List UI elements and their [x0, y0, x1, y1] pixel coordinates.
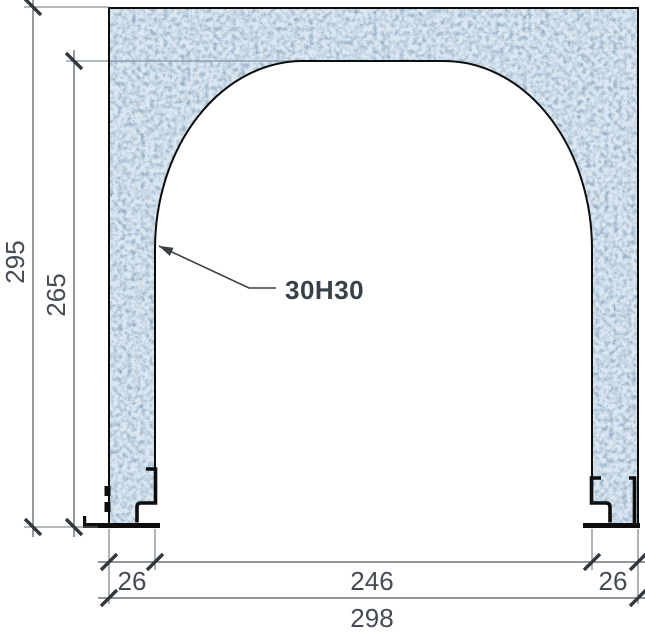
right-notch: [591, 505, 610, 524]
dim-value-opening-height: 265: [41, 273, 71, 316]
right-base-plate: [583, 523, 640, 528]
leader-line: [159, 246, 276, 288]
portal-section-drawing: 295 265 26 246 26 298 30H30: [0, 0, 645, 633]
annotation-30h30: 30H30: [159, 246, 364, 305]
left-base-hook: [83, 516, 86, 524]
annotation-label: 30H30: [285, 275, 364, 305]
concrete-body: [66, 0, 645, 535]
dim-value-total-height: 295: [0, 240, 30, 283]
left-notch: [137, 505, 157, 524]
dim-value-total-width: 298: [350, 603, 393, 633]
left-anchor-tab-upper: [105, 486, 111, 496]
left-anchor-tab-lower: [105, 502, 111, 512]
dim-value-right-wall: 26: [599, 566, 628, 596]
drawing-canvas: 295 265 26 246 26 298 30H30: [0, 0, 645, 633]
dim-value-opening-width: 246: [350, 566, 393, 596]
concrete-speckle-texture: [100, 0, 645, 535]
leader-arrowhead: [159, 246, 174, 256]
dim-value-left-wall: 26: [118, 566, 147, 596]
